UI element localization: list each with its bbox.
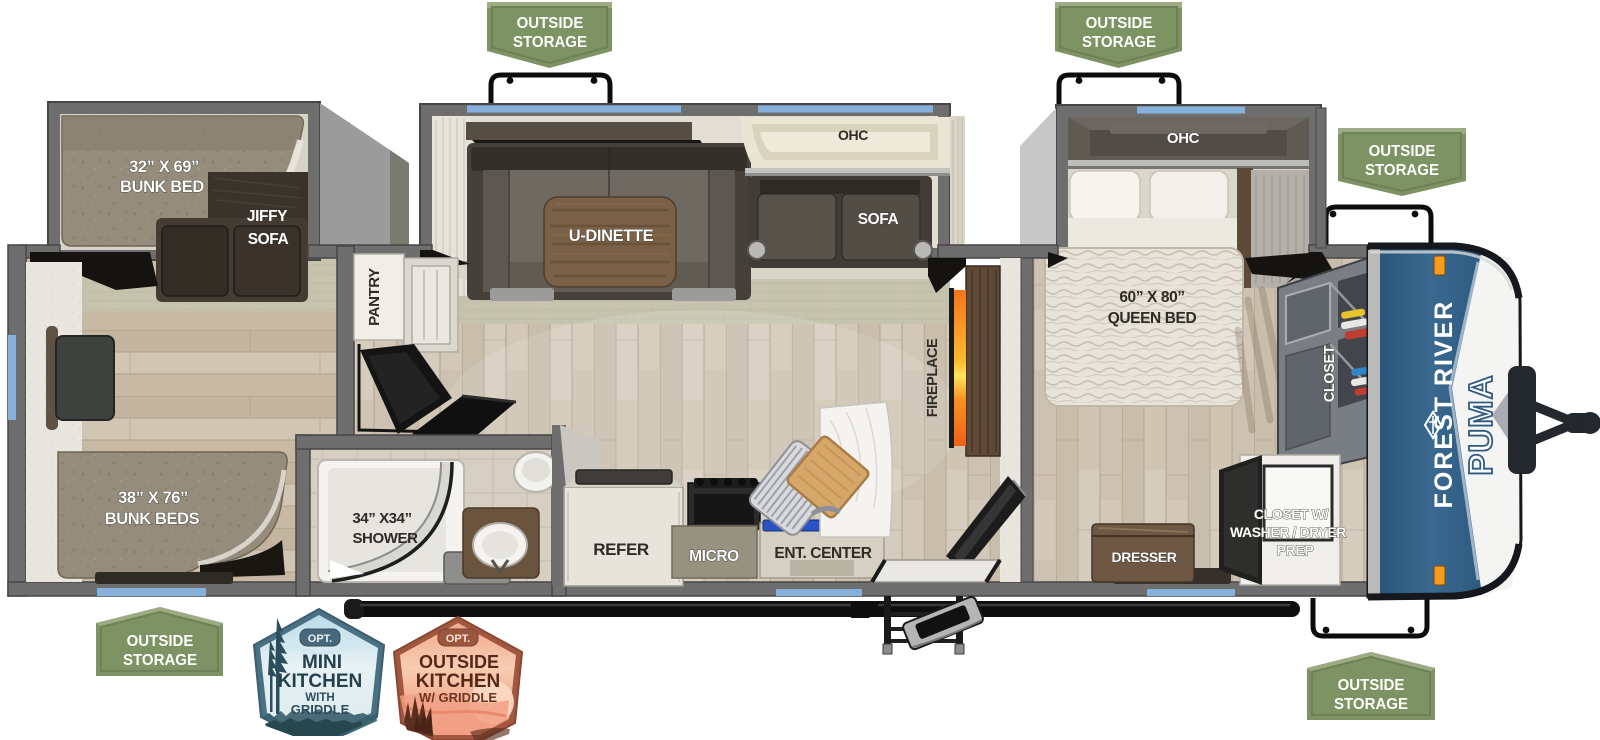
svg-text:STORAGE: STORAGE [513, 34, 587, 51]
svg-text:OUTSIDE: OUTSIDE [1086, 15, 1153, 32]
svg-text:FOREST RIVER: FOREST RIVER [1430, 300, 1458, 509]
svg-text:W/ GRIDDLE: W/ GRIDDLE [419, 690, 497, 705]
svg-text:SOFA: SOFA [248, 231, 289, 248]
svg-text:OHC: OHC [1167, 130, 1200, 147]
svg-text:BUNK BED: BUNK BED [120, 178, 204, 196]
svg-text:FIREPLACE: FIREPLACE [925, 338, 941, 417]
svg-text:32” X 69”: 32” X 69” [129, 158, 199, 176]
svg-text:38” X 76”: 38” X 76” [118, 489, 188, 507]
svg-text:DRESSER: DRESSER [1112, 549, 1177, 565]
svg-text:OUTSIDE: OUTSIDE [127, 633, 194, 650]
svg-text:JIFFY: JIFFY [247, 208, 288, 225]
svg-text:OUTSIDE: OUTSIDE [1369, 143, 1436, 160]
svg-text:34” X34”: 34” X34” [352, 510, 411, 527]
svg-text:REFER: REFER [593, 540, 649, 559]
svg-text:SHOWER: SHOWER [352, 530, 418, 547]
svg-text:OPT.: OPT. [308, 633, 332, 645]
svg-text:QUEEN BED: QUEEN BED [1108, 310, 1197, 327]
svg-text:U-DINETTE: U-DINETTE [569, 227, 654, 245]
svg-text:STORAGE: STORAGE [123, 652, 197, 669]
svg-text:OPT.: OPT. [446, 633, 470, 645]
svg-text:WASHER / DRYER: WASHER / DRYER [1230, 524, 1346, 540]
svg-text:STORAGE: STORAGE [1365, 162, 1439, 179]
svg-text:PREP: PREP [1277, 542, 1314, 558]
svg-text:BUNK BEDS: BUNK BEDS [105, 510, 200, 528]
svg-text:GRIDDLE: GRIDDLE [291, 702, 350, 717]
svg-text:MICRO: MICRO [689, 548, 739, 565]
svg-text:OUTSIDE: OUTSIDE [517, 15, 584, 32]
svg-text:PUMA: PUMA [1462, 374, 1499, 475]
svg-text:ENT. CENTER: ENT. CENTER [774, 545, 871, 562]
svg-text:MINI: MINI [302, 652, 342, 673]
svg-text:60” X 80”: 60” X 80” [1119, 289, 1184, 306]
svg-text:SOFA: SOFA [858, 211, 899, 228]
svg-text:CLOSET W/: CLOSET W/ [1254, 506, 1329, 522]
svg-text:OUTSIDE: OUTSIDE [1338, 677, 1405, 694]
svg-text:OUTSIDE: OUTSIDE [419, 652, 499, 672]
svg-text:STORAGE: STORAGE [1082, 34, 1156, 51]
svg-text:STORAGE: STORAGE [1334, 696, 1408, 713]
svg-text:CLOSET: CLOSET [1322, 345, 1338, 402]
svg-text:KITCHEN: KITCHEN [416, 671, 500, 692]
svg-text:OHC: OHC [838, 127, 868, 143]
svg-text:PANTRY: PANTRY [366, 268, 383, 326]
svg-text:KITCHEN: KITCHEN [278, 671, 362, 692]
